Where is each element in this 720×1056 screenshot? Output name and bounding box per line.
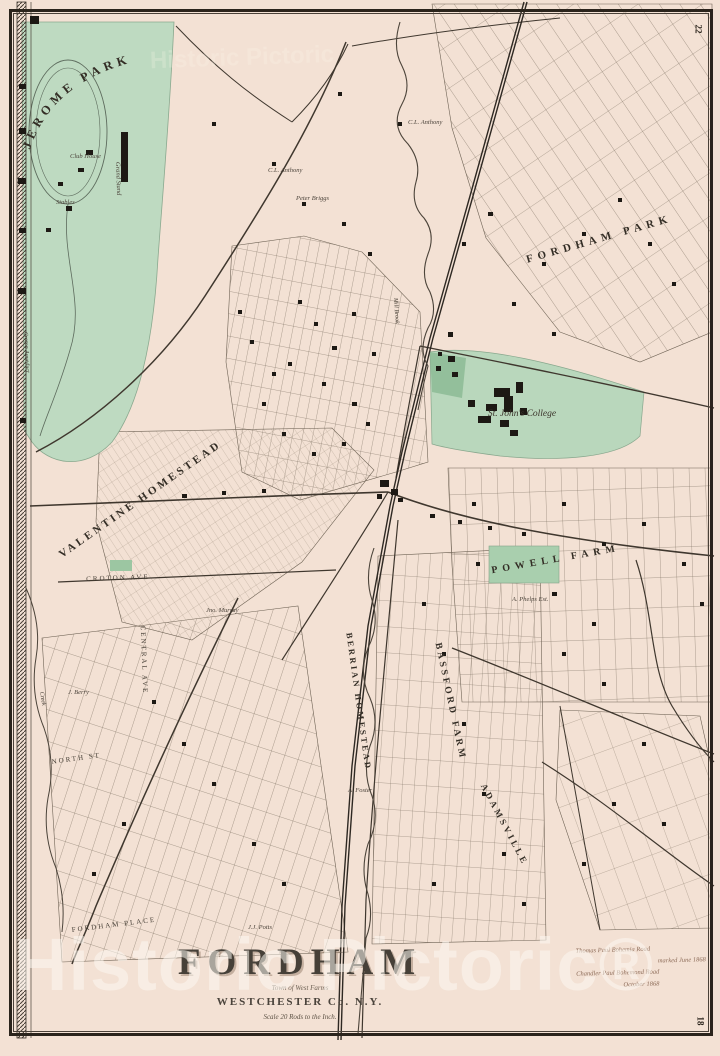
map-county: WESTCHESTER Co. N.Y. <box>150 996 450 1008</box>
owner-label: A. Foster <box>347 787 373 794</box>
owner-label: Jno. Murray <box>206 607 239 614</box>
map-scale-note: Scale 20 Rods to the Inch. <box>150 1013 450 1021</box>
map-page: JEROME PARK FORDHAM PARK St. John's Coll… <box>0 0 720 1056</box>
map-title: FORDHAM <box>150 944 450 981</box>
st-johns-college-label: St. John's College <box>488 409 556 419</box>
stables-label: Stables <box>56 199 75 206</box>
page-number-top: 22 <box>694 25 704 34</box>
club-house-label: Club House <box>70 153 101 160</box>
handwritten-annotation: Thomas Paul Bohemia Road marked June 186… <box>575 942 706 992</box>
map-subtitle: Town of West Farms <box>150 984 450 992</box>
owner-label: J.J. Potts <box>248 924 272 931</box>
owner-label: J. Berry <box>68 689 89 696</box>
small-green-lot <box>110 560 132 571</box>
title-block: FORDHAM Town of West Farms WESTCHESTER C… <box>150 944 450 1021</box>
owner-label: A. Phelps Est. <box>511 596 549 603</box>
historic-map-canvas: JEROME PARK FORDHAM PARK St. John's Coll… <box>0 0 720 1056</box>
grand-stand-label: Grand Stand <box>114 162 122 196</box>
owner-label: C.L. Anthony <box>408 119 442 126</box>
page-number-bottom: 18 <box>696 1017 706 1026</box>
owner-label: C.L. Anthony <box>268 167 302 174</box>
owner-label: Peter Briggs <box>295 195 330 202</box>
